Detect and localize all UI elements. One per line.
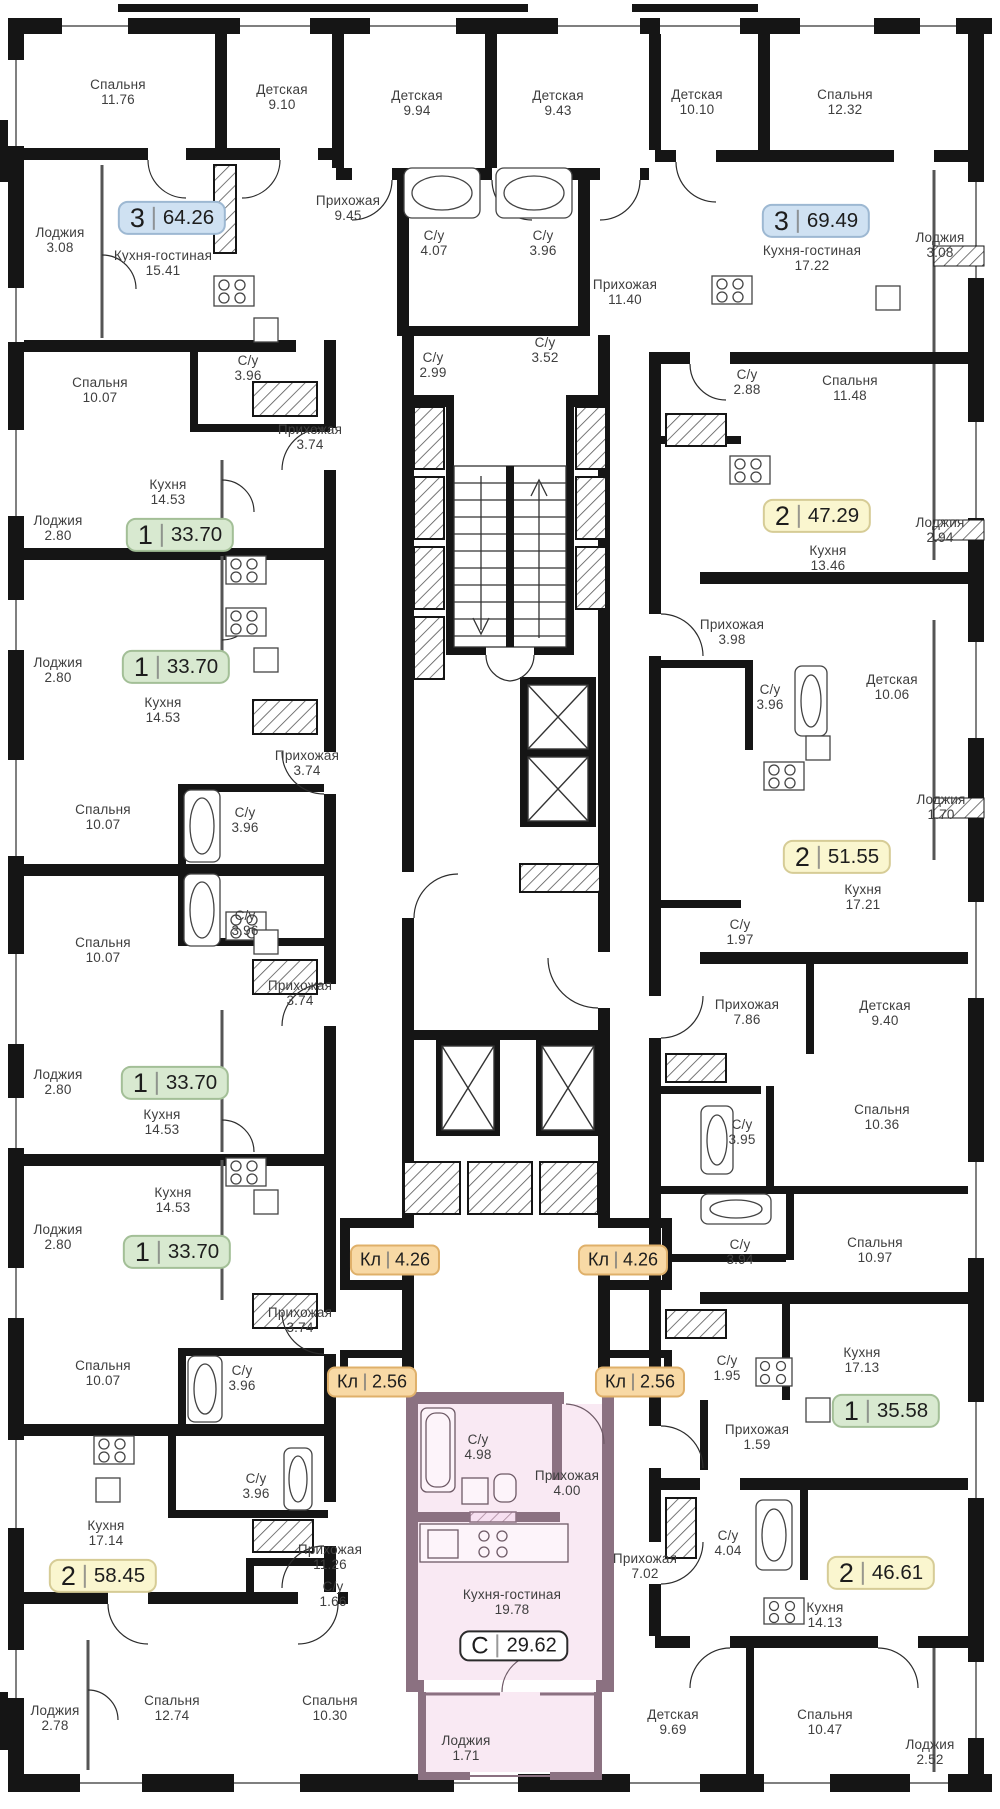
room-label: Прихожая3.98 bbox=[700, 617, 764, 647]
unit-badge[interactable]: 247.29 bbox=[763, 499, 871, 533]
unit-badge[interactable]: Кл4.26 bbox=[578, 1245, 668, 1276]
room-label: Прихожая7.86 bbox=[715, 997, 779, 1027]
room-label: С/у3.94 bbox=[726, 1237, 753, 1267]
room-label: Спальня10.36 bbox=[854, 1102, 910, 1132]
room-label: Спальня11.48 bbox=[822, 373, 878, 403]
unit-badge[interactable]: 133.70 bbox=[126, 518, 234, 552]
room-label: Спальня10.07 bbox=[75, 802, 131, 832]
room-label: Лоджия3.08 bbox=[35, 225, 84, 255]
room-label: Кухня14.53 bbox=[144, 695, 181, 725]
room-label: Спальня10.07 bbox=[75, 935, 131, 965]
room-label: С/у3.96 bbox=[234, 353, 261, 383]
room-label: Детская10.06 bbox=[866, 672, 917, 702]
room-label: Прихожая3.74 bbox=[268, 978, 332, 1008]
room-label: С/у3.52 bbox=[531, 335, 558, 365]
stair-elevator-core bbox=[340, 335, 672, 1396]
room-label: Детская9.94 bbox=[391, 88, 442, 118]
room-label: С/у3.96 bbox=[231, 805, 258, 835]
unit-badge[interactable]: 133.70 bbox=[122, 650, 230, 684]
room-label: Лоджия2.80 bbox=[33, 513, 82, 543]
room-label: Кухня17.21 bbox=[844, 882, 881, 912]
room-label: Детская9.10 bbox=[256, 82, 307, 112]
room-label: Кухня14.53 bbox=[149, 477, 186, 507]
room-label: Прихожая11.26 bbox=[298, 1542, 362, 1572]
unit-badge[interactable]: Кл2.56 bbox=[595, 1367, 685, 1398]
room-label: Спальня11.76 bbox=[90, 77, 146, 107]
unit-badge[interactable]: 251.55 bbox=[783, 840, 891, 874]
room-label: Детская9.43 bbox=[532, 88, 583, 118]
unit-badge[interactable]: 135.58 bbox=[832, 1394, 940, 1428]
unit-badge[interactable]: Кл2.56 bbox=[327, 1367, 417, 1398]
room-label: Лоджия2.78 bbox=[30, 1703, 79, 1733]
room-label: С/у1.95 bbox=[713, 1353, 740, 1383]
room-label: Кухня-гостиная17.22 bbox=[763, 243, 861, 273]
room-label: Прихожая3.74 bbox=[268, 1305, 332, 1335]
room-label: Прихожая9.45 bbox=[316, 193, 380, 223]
room-label: Лоджия2.80 bbox=[33, 1222, 82, 1252]
elevator-shafts bbox=[436, 677, 600, 1136]
room-label: С/у3.96 bbox=[242, 1471, 269, 1501]
room-label: Спальня10.97 bbox=[847, 1235, 903, 1265]
room-label: С/у1.97 bbox=[726, 917, 753, 947]
room-label: Спальня10.30 bbox=[302, 1693, 358, 1723]
room-label: С/у3.95 bbox=[728, 1117, 755, 1147]
room-label: Лоджия2.52 bbox=[905, 1737, 954, 1767]
room-label: С/у4.07 bbox=[420, 228, 447, 258]
room-label: Спальня10.07 bbox=[75, 1358, 131, 1388]
room-label: С/у1.66 bbox=[319, 1579, 346, 1609]
room-label: Прихожая4.00 bbox=[535, 1468, 599, 1498]
room-label: Спальня10.07 bbox=[72, 375, 128, 405]
room-label: Кухня14.13 bbox=[806, 1600, 843, 1630]
room-label: Лоджия2.80 bbox=[33, 655, 82, 685]
room-label: Прихожая11.40 bbox=[593, 277, 657, 307]
room-label: Детская9.40 bbox=[859, 998, 910, 1028]
room-label: С/у3.96 bbox=[756, 682, 783, 712]
unit-badge[interactable]: 246.61 bbox=[827, 1556, 935, 1590]
room-label: С/у4.04 bbox=[714, 1528, 741, 1558]
room-label: С/у4.98 bbox=[464, 1432, 491, 1462]
room-label: Кухня13.46 bbox=[809, 543, 846, 573]
unit-badge[interactable]: С29.62 bbox=[459, 1630, 568, 1661]
room-label: Кухня17.13 bbox=[843, 1345, 880, 1375]
room-label: Спальня10.47 bbox=[797, 1707, 853, 1737]
unit-badge[interactable]: 133.70 bbox=[123, 1235, 231, 1269]
room-label: Кухня17.14 bbox=[87, 1518, 124, 1548]
floor-plan: ? Спальня11.76Детская9.10Лоджия3.08Кухня… bbox=[0, 0, 1000, 1809]
room-label: Спальня12.74 bbox=[144, 1693, 200, 1723]
unit-badge[interactable]: 369.49 bbox=[762, 204, 870, 238]
room-label: С/у2.88 bbox=[733, 367, 760, 397]
room-label: Прихожая7.02 bbox=[613, 1551, 677, 1581]
room-label: Детская10.10 bbox=[671, 87, 722, 117]
room-label: С/у3.96 bbox=[231, 908, 258, 938]
room-label: Кухня-гостиная15.41 bbox=[114, 248, 212, 278]
room-label: Лоджия1.70 bbox=[916, 792, 965, 822]
room-label: Лоджия2.94 bbox=[915, 515, 964, 545]
room-label: С/у3.96 bbox=[228, 1363, 255, 1393]
room-label: Прихожая1.59 bbox=[725, 1422, 789, 1452]
room-label: Лоджия1.71 bbox=[441, 1733, 490, 1763]
unit-badge[interactable]: 133.70 bbox=[121, 1066, 229, 1100]
room-label: Прихожая3.74 bbox=[275, 748, 339, 778]
room-label: Лоджия2.80 bbox=[33, 1067, 82, 1097]
room-label: Прихожая3.74 bbox=[278, 422, 342, 452]
room-label: С/у2.99 bbox=[419, 350, 446, 380]
unit-badge[interactable]: Кл4.26 bbox=[350, 1245, 440, 1276]
unit-badge[interactable]: 258.45 bbox=[49, 1559, 157, 1593]
room-label: Кухня-гостиная19.78 bbox=[463, 1587, 561, 1617]
room-label: Спальня12.32 bbox=[817, 87, 873, 117]
unit-badge[interactable]: 364.26 bbox=[118, 201, 226, 235]
room-label: Лоджия3.08 bbox=[915, 230, 964, 260]
room-label: Кухня14.53 bbox=[143, 1107, 180, 1137]
room-label: Кухня14.53 bbox=[154, 1185, 191, 1215]
room-label: С/у3.96 bbox=[529, 228, 556, 258]
room-label: Детская9.69 bbox=[647, 1707, 698, 1737]
stairs bbox=[454, 466, 566, 647]
